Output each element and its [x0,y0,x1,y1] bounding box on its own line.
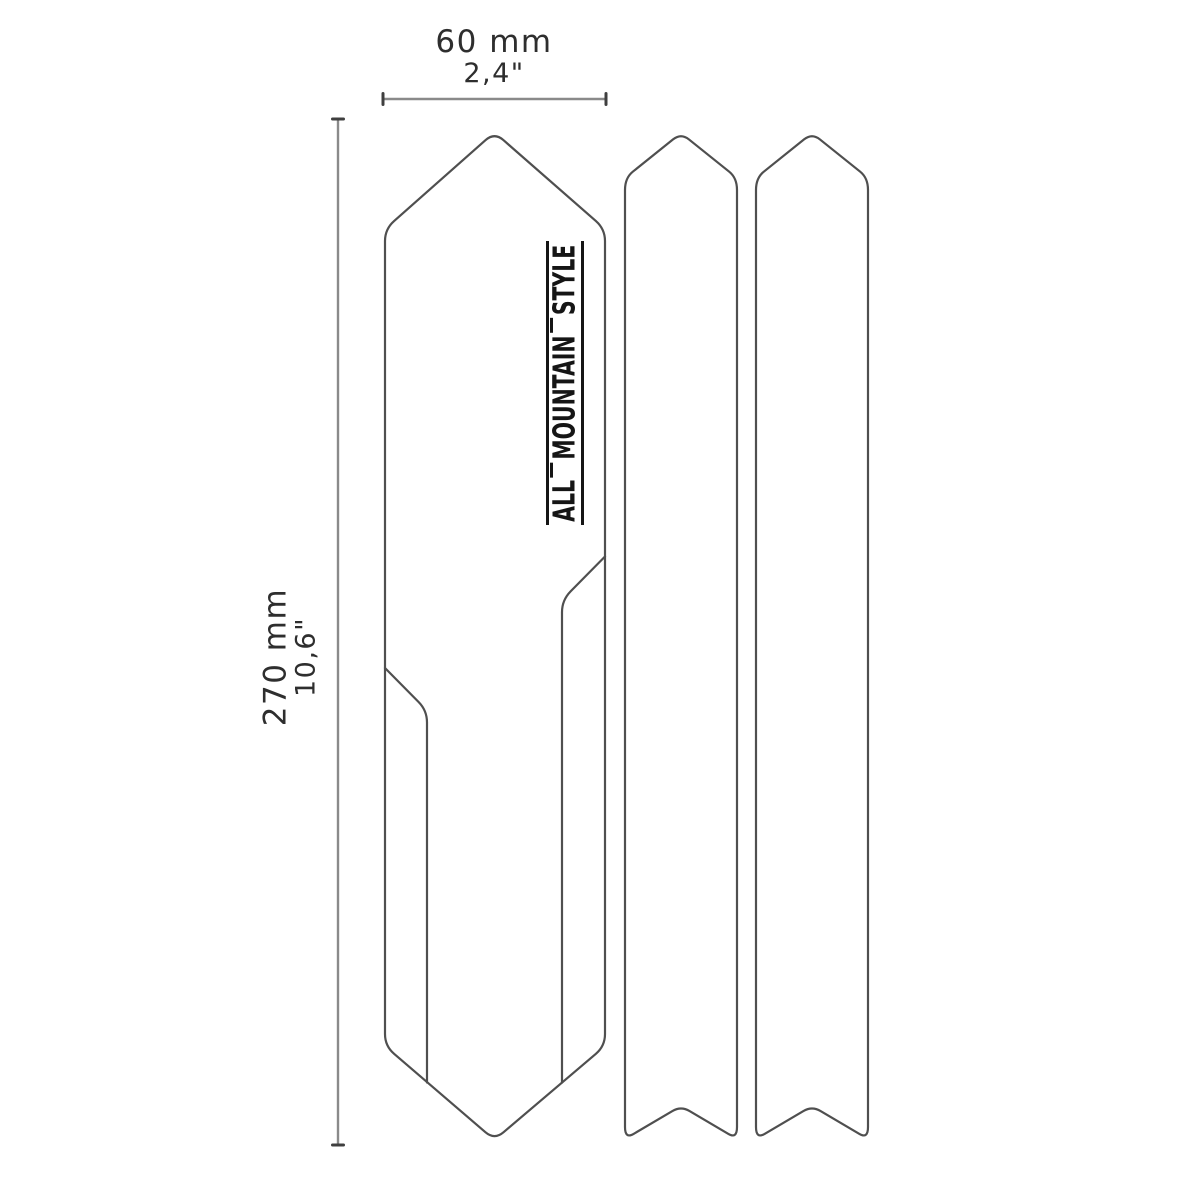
strip-left-outline [625,136,737,1135]
ams-logo-text: ALLMOUNTAINSTYLE [550,245,581,522]
width-label-metric: 60 mm [435,24,552,60]
ams-logo-word-mountain: MOUNTAIN [547,335,582,459]
height-label: 270 mm 10,6" [261,588,322,726]
height-label-imperial: 10,6" [292,588,322,726]
die-cut-drawing [0,0,1200,1200]
logo-separator-icon [550,462,553,477]
ams-logo-word-all: ALL [547,480,582,522]
strip-right-outline [756,136,868,1135]
width-label-imperial: 2,4" [463,58,524,89]
ams-logo-word-style: STYLE [547,245,582,315]
main-guard-right-cut-line [562,557,605,1083]
logo-separator-icon [550,318,553,333]
height-label-metric: 270 mm [261,588,292,726]
frame-guard-diagram: 60 mm 2,4" 270 mm 10,6" ALLMOUNTAINSTYLE [0,0,1200,1200]
ams-logo: ALLMOUNTAINSTYLE [546,241,584,525]
main-guard-left-cut-line [385,668,427,1083]
